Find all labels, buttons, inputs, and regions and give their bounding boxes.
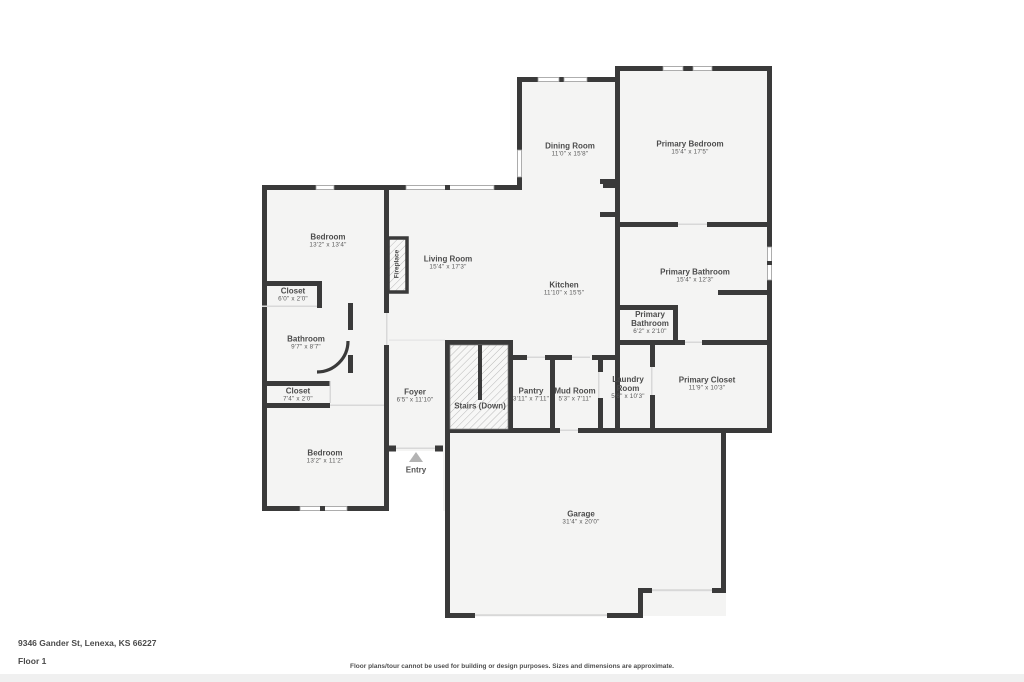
floorplan-walls [0,0,1024,682]
room-label-closet-1: Closet 6'0" x 2'0" [278,287,308,304]
room-label-closet-2: Closet 7'4" x 2'0" [283,387,313,404]
disclaimer-text: Floor plans/tour cannot be used for buil… [350,663,674,670]
room-label-kitchen: Kitchen 11'10" x 15'5" [544,281,584,298]
room-label-pantry: Pantry 3'11" x 7'11" [513,387,549,404]
room-label-primary-bathroom-wc: Primary Bathroom 6'2" x 2'10" [627,310,673,336]
room-label-foyer: Foyer 6'5" x 11'10" [397,388,434,405]
fireplace-label: Fireplace [394,250,401,279]
room-label-bedroom-1: Bedroom 13'2" x 13'4" [309,233,346,250]
room-label-bathroom: Bathroom 9'7" x 8'7" [287,335,325,352]
entry-arrow-icon [409,452,423,462]
room-label-primary-closet: Primary Closet 11'9" x 10'3" [679,376,735,393]
floorplan-canvas: Bedroom 13'2" x 13'4" Closet 6'0" x 2'0"… [0,0,1024,682]
room-label-bedroom-2: Bedroom 13'2" x 11'2" [307,449,344,466]
floor-label: Floor 1 [18,656,46,666]
room-label-mud-room: Mud Room 5'3" x 7'11" [554,387,595,404]
bottom-strip [0,674,1024,682]
room-label-dining-room: Dining Room 11'0" x 15'8" [545,142,595,159]
stairs-label: Stairs (Down) [454,402,506,411]
room-label-garage: Garage 31'4" x 20'0" [562,510,599,527]
room-label-primary-bathroom: Primary Bathroom 15'4" x 12'3" [660,268,730,285]
entry-label: Entry [406,466,426,475]
room-label-laundry-room: Laundry Room 5'6" x 10'3" [607,375,649,401]
address-text: 9346 Gander St, Lenexa, KS 66227 [18,638,156,648]
room-label-primary-bedroom: Primary Bedroom 15'4" x 17'5" [656,140,723,157]
room-label-living-room: Living Room 15'4" x 17'3" [424,255,472,272]
